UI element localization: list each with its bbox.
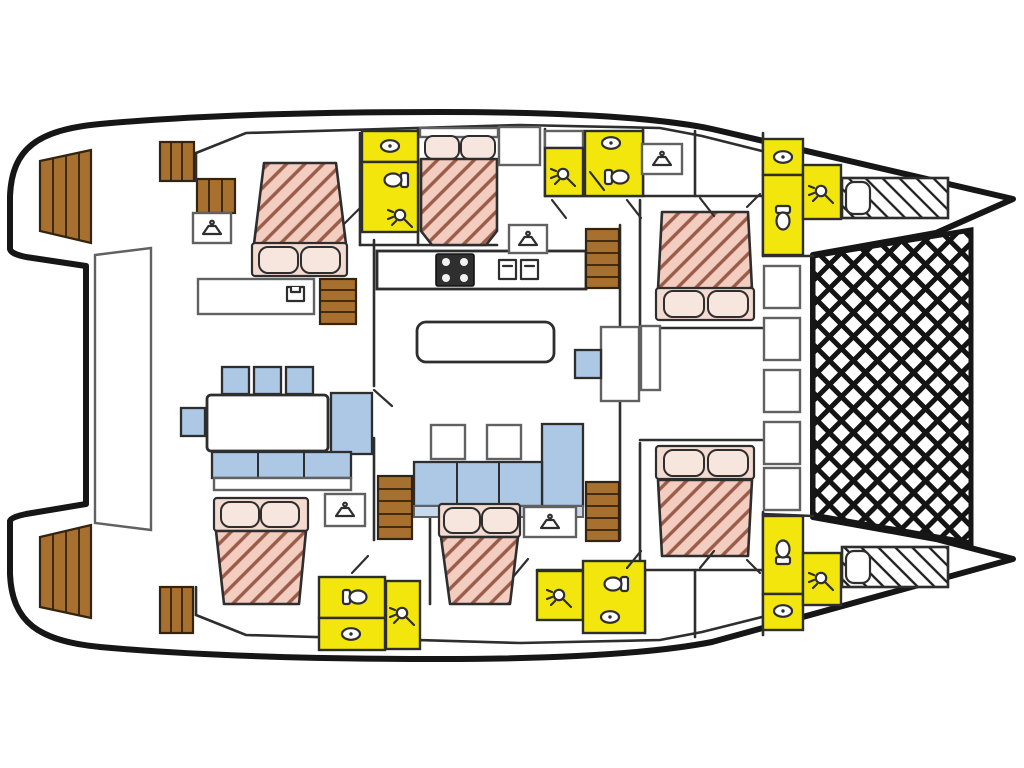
deck-plan-svg xyxy=(0,0,1024,768)
double-bed xyxy=(658,480,752,556)
double-bed xyxy=(254,163,346,244)
wardrobe xyxy=(499,127,540,165)
pillow xyxy=(708,450,748,476)
bow-trampoline-net xyxy=(813,230,971,543)
double-bed xyxy=(216,531,306,604)
toilet-icon xyxy=(776,541,790,565)
catamaran-deck-plan xyxy=(0,0,1024,768)
cockpit-shelf xyxy=(214,478,351,490)
cockpit-chair xyxy=(254,367,281,394)
bow-berth-starboard xyxy=(842,547,948,587)
cabin-fwd-port xyxy=(656,212,754,320)
toilet-icon xyxy=(343,590,367,604)
toilet-icon xyxy=(605,170,629,184)
stairs-port-aft xyxy=(320,279,356,324)
nav-desk xyxy=(601,327,639,401)
pillow xyxy=(261,502,299,527)
vanity-aft-port xyxy=(193,213,231,243)
swim-steps-starboard xyxy=(40,525,91,618)
cockpit-chair xyxy=(222,367,249,394)
hatch-icon xyxy=(287,287,304,301)
double-bed xyxy=(658,212,752,289)
cockpit-chair xyxy=(181,408,205,436)
washbasin-icon xyxy=(774,605,792,617)
galley-counter xyxy=(377,251,586,289)
stairs-starboard-fwd xyxy=(586,482,619,541)
nav-stool xyxy=(575,350,601,378)
pillow xyxy=(444,508,480,533)
cabin-fwd-starboard xyxy=(656,446,754,556)
pillow xyxy=(425,136,459,159)
nav-console xyxy=(641,326,660,390)
pillow xyxy=(221,502,259,527)
vanity-mid-starboard xyxy=(524,507,576,537)
cockpit-side-bench xyxy=(331,393,372,454)
galley xyxy=(377,251,586,289)
washbasin-icon xyxy=(774,151,792,163)
cockpit-table xyxy=(207,395,328,451)
washbasin-icon xyxy=(381,140,399,152)
cockpit-bench xyxy=(212,452,351,478)
pillow xyxy=(482,508,518,533)
bathroom-mid-port xyxy=(545,131,643,196)
bathroom-aft-starboard xyxy=(319,577,420,650)
ottoman xyxy=(431,425,465,459)
entry-steps-port-lower xyxy=(197,179,235,213)
pillow xyxy=(846,182,870,214)
foredeck-lockers xyxy=(764,266,800,510)
cockpit-chair xyxy=(286,367,313,394)
saloon-table xyxy=(417,322,554,362)
toilet-icon xyxy=(605,577,629,591)
swim-steps-port xyxy=(40,150,91,243)
washbasin-icon xyxy=(602,137,620,149)
stairs-port-fwd xyxy=(586,229,619,288)
double-bed xyxy=(421,159,497,245)
vanity-fwd-port xyxy=(642,144,682,174)
stairs-starboard-aft xyxy=(378,476,412,539)
pillow xyxy=(664,291,704,317)
pillow xyxy=(708,291,748,317)
pillow xyxy=(301,247,340,273)
toilet-icon xyxy=(776,206,790,230)
cabin-aft-starboard xyxy=(214,498,308,604)
washbasin-icon xyxy=(601,611,619,623)
pillow xyxy=(259,247,298,273)
washbasin-icon xyxy=(342,628,360,640)
vanity-aft-starboard xyxy=(325,494,365,526)
bathroom-aft-port xyxy=(362,131,418,232)
bow-berth-port xyxy=(842,178,948,218)
entry-steps-starboard xyxy=(160,587,193,633)
ottoman xyxy=(487,425,521,459)
stove-icon xyxy=(436,254,474,286)
pillow xyxy=(461,136,495,159)
transom-locker xyxy=(95,248,151,530)
vanity-galley xyxy=(509,225,547,253)
cabin-mid-starboard xyxy=(439,504,520,604)
entry-steps-port-upper xyxy=(160,142,194,181)
toilet-icon xyxy=(385,173,409,187)
pillow xyxy=(846,551,870,583)
pillow xyxy=(664,450,704,476)
double-bed xyxy=(441,537,518,604)
